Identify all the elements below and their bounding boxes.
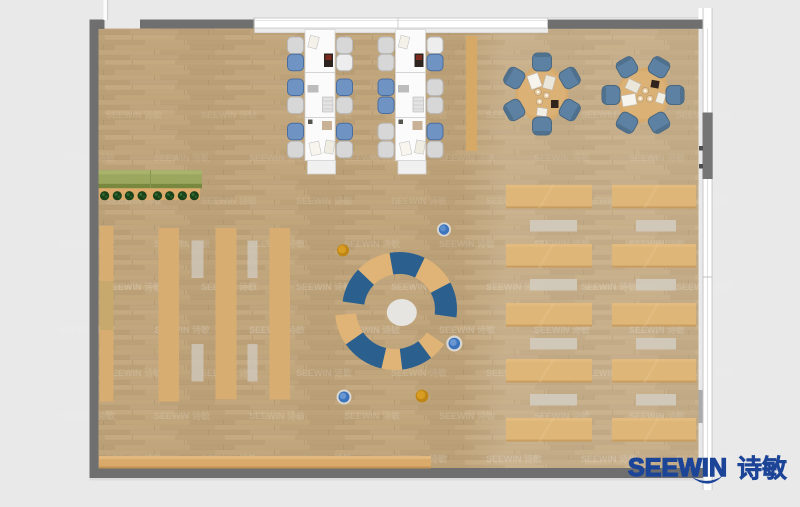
svg-text:SEEWIN 诗敏: SEEWIN 诗敏	[59, 152, 116, 163]
svg-text:SEEWIN 诗敏: SEEWIN 诗敏	[201, 195, 258, 206]
svg-text:SEEWIN 诗敏: SEEWIN 诗敏	[106, 367, 163, 378]
svg-text:SEEWIN 诗敏: SEEWIN 诗敏	[439, 238, 496, 249]
svg-text:SEEWIN 诗敏: SEEWIN 诗敏	[629, 152, 686, 163]
svg-text:SEEWIN 诗敏: SEEWIN 诗敏	[344, 410, 401, 421]
svg-text:诗敏: 诗敏	[737, 454, 787, 483]
svg-text:SEEWIN 诗敏: SEEWIN 诗敏	[344, 238, 401, 249]
svg-text:SEEWIN 诗敏: SEEWIN 诗敏	[486, 453, 543, 464]
svg-text:SEEWIN: SEEWIN	[628, 454, 727, 482]
svg-text:SEEWIN 诗敏: SEEWIN 诗敏	[296, 367, 353, 378]
svg-text:SEEWIN 诗敏: SEEWIN 诗敏	[154, 152, 211, 163]
svg-text:SEEWIN 诗敏: SEEWIN 诗敏	[391, 195, 448, 206]
svg-text:SEEWIN 诗敏: SEEWIN 诗敏	[534, 152, 591, 163]
svg-text:SEEWIN 诗敏: SEEWIN 诗敏	[106, 281, 163, 292]
svg-text:SEEWIN 诗敏: SEEWIN 诗敏	[201, 109, 258, 120]
svg-text:SEEWIN 诗敏: SEEWIN 诗敏	[439, 324, 496, 335]
svg-text:SEEWIN 诗敏: SEEWIN 诗敏	[439, 152, 496, 163]
svg-text:SEEWIN 诗敏: SEEWIN 诗敏	[296, 281, 353, 292]
svg-text:SEEWIN 诗敏: SEEWIN 诗敏	[59, 410, 116, 421]
svg-text:SEEWIN 诗敏: SEEWIN 诗敏	[581, 281, 638, 292]
svg-text:SEEWIN 诗敏: SEEWIN 诗敏	[154, 410, 211, 421]
svg-text:SEEWIN 诗敏: SEEWIN 诗敏	[249, 410, 306, 421]
svg-text:SEEWIN 诗敏: SEEWIN 诗敏	[439, 410, 496, 421]
svg-text:SEEWIN 诗敏: SEEWIN 诗敏	[106, 109, 163, 120]
svg-text:SEEWIN 诗敏: SEEWIN 诗敏	[296, 195, 353, 206]
